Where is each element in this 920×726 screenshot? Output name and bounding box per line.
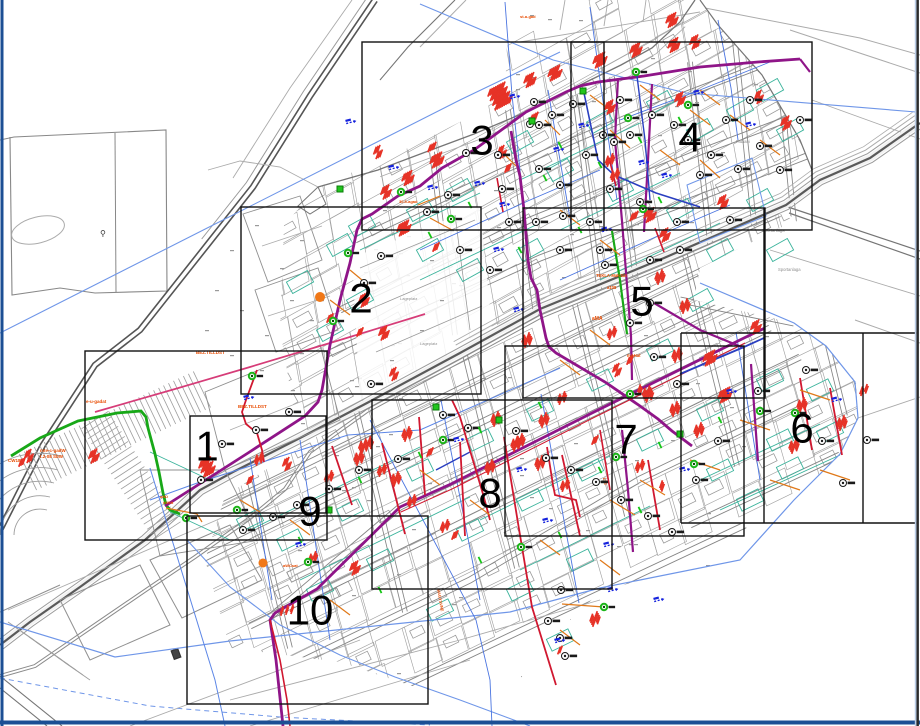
svg-text:10: 10 [287, 587, 334, 634]
svg-text:aWCsat: aWCsat [283, 563, 298, 568]
svg-text:BEZ.TILLDST: BEZ.TILLDST [238, 404, 267, 409]
svg-text:⚲: ⚲ [100, 229, 106, 238]
svg-text:CW18: CW18 [8, 458, 21, 463]
svg-text:TEKLA-MaKSat: TEKLA-MaKSat [596, 273, 627, 278]
svg-text:Lageplatz: Lageplatz [400, 296, 417, 301]
svg-text:a108: a108 [607, 285, 617, 290]
svg-text:Lageplatz: Lageplatz [420, 341, 437, 346]
svg-text:t.2-08 SbW: t.2-08 SbW [40, 454, 64, 459]
svg-text:aND: aND [160, 494, 168, 499]
svg-text:aMA: aMA [592, 316, 603, 322]
svg-text:8: 8 [478, 470, 501, 517]
svg-text:3: 3 [470, 117, 493, 164]
svg-text:5: 5 [630, 278, 653, 325]
svg-text:7: 7 [614, 416, 637, 463]
svg-text:eWNt: eWNt [163, 500, 174, 505]
svg-text:1: 1 [195, 423, 218, 470]
svg-text:30.5-agad: 30.5-agad [399, 199, 418, 204]
svg-text:mte-c-gadW: mte-c-gadW [40, 448, 67, 453]
svg-text:2: 2 [349, 275, 372, 322]
svg-text:st-a-gad: st-a-gad [520, 14, 536, 19]
svg-text:mAHat: mAHat [627, 353, 641, 358]
svg-text:6: 6 [790, 405, 813, 452]
svg-text:e-u-gadat: e-u-gadat [86, 399, 107, 404]
svg-text:9: 9 [298, 488, 321, 535]
svg-text:4: 4 [678, 114, 701, 161]
svg-text:Sportanlaga: Sportanlaga [778, 267, 801, 272]
